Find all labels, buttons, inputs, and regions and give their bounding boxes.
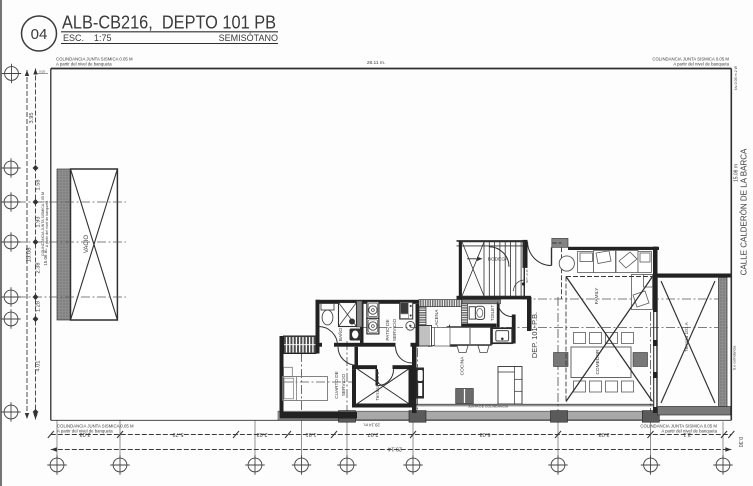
svg-text:3.1: 3.1 bbox=[683, 431, 691, 437]
svg-text:2.97: 2.97 bbox=[368, 431, 379, 437]
svg-text:BODEGA: BODEGA bbox=[488, 257, 509, 263]
svg-text:6.03: 6.03 bbox=[480, 431, 491, 437]
svg-text:4.01: 4.01 bbox=[36, 361, 42, 372]
svg-text:3.03: 3.03 bbox=[599, 431, 610, 437]
svg-text:ESC. 1:75: ESC. 1:75 bbox=[63, 33, 112, 43]
svg-text:15.08 m: 15.08 m bbox=[734, 164, 740, 182]
svg-text:ALB-CB216, DEPTO 101 PB: ALB-CB216, DEPTO 101 PB bbox=[62, 12, 276, 33]
svg-text:BAÑO: BAÑO bbox=[337, 328, 343, 342]
svg-text:FAMILY: FAMILY bbox=[594, 287, 600, 305]
svg-text:A partir del nivel de banqueta: A partir del nivel de banqueta bbox=[45, 201, 49, 248]
svg-text:COCINA: COCINA bbox=[460, 356, 466, 375]
svg-text:0.30: 0.30 bbox=[737, 437, 743, 448]
svg-text:29.14 m.: 29.14 m. bbox=[363, 423, 380, 428]
svg-text:Nv-0.05 m 2 W: Nv-0.05 m 2 W bbox=[734, 65, 738, 90]
svg-text:PATIO DE: PATIO DE bbox=[385, 319, 390, 340]
svg-text:A partir del nivel de banqueta: A partir del nivel de banqueta bbox=[673, 62, 729, 67]
svg-text:2.03: 2.03 bbox=[257, 431, 268, 437]
svg-text:JUNTA DE COLINDANCIA: JUNTA DE COLINDANCIA bbox=[468, 404, 509, 408]
svg-text:VACIO: VACIO bbox=[84, 235, 90, 254]
svg-text:NPT +0.15: NPT +0.15 bbox=[525, 269, 529, 283]
svg-text:S.e colindancia: S.e colindancia bbox=[733, 346, 737, 370]
svg-text:29.14: 29.14 bbox=[388, 446, 402, 452]
svg-text:SERVICIO: SERVICIO bbox=[392, 318, 397, 341]
svg-text:0.05: 0.05 bbox=[39, 70, 45, 74]
svg-text:04: 04 bbox=[31, 26, 48, 43]
svg-text:1.91: 1.91 bbox=[306, 431, 317, 437]
svg-text:Terraza 101 A: Terraza 101 A bbox=[684, 321, 690, 351]
svg-text:3.95: 3.95 bbox=[29, 113, 35, 124]
svg-text:3.03: 3.03 bbox=[80, 431, 91, 437]
svg-text:A partir del nivel de banqueta: A partir del nivel de banqueta bbox=[56, 62, 112, 67]
svg-text:DEP. 101-P.B.: DEP. 101-P.B. bbox=[530, 312, 539, 358]
svg-text:28.11 m.: 28.11 m. bbox=[367, 60, 385, 66]
svg-text:CALLE CALDERÓN DE LA BARCA: CALLE CALDERÓN DE LA BARCA bbox=[740, 148, 749, 275]
svg-text:1.58: 1.58 bbox=[36, 180, 42, 191]
svg-text:5.79: 5.79 bbox=[173, 431, 184, 437]
svg-text:SEMISÓTANO: SEMISÓTANO bbox=[219, 33, 278, 43]
svg-text:SERVICIO: SERVICIO bbox=[341, 373, 346, 396]
svg-text:15.08: 15.08 bbox=[27, 247, 33, 263]
svg-text:Terraza 101 B: Terraza 101 B bbox=[375, 371, 380, 400]
svg-text:1.28: 1.28 bbox=[36, 301, 42, 312]
svg-text:TOILET: TOILET bbox=[490, 305, 495, 321]
svg-text:CUARTO DE: CUARTO DE bbox=[334, 371, 339, 398]
svg-text:2.38: 2.38 bbox=[36, 263, 42, 274]
